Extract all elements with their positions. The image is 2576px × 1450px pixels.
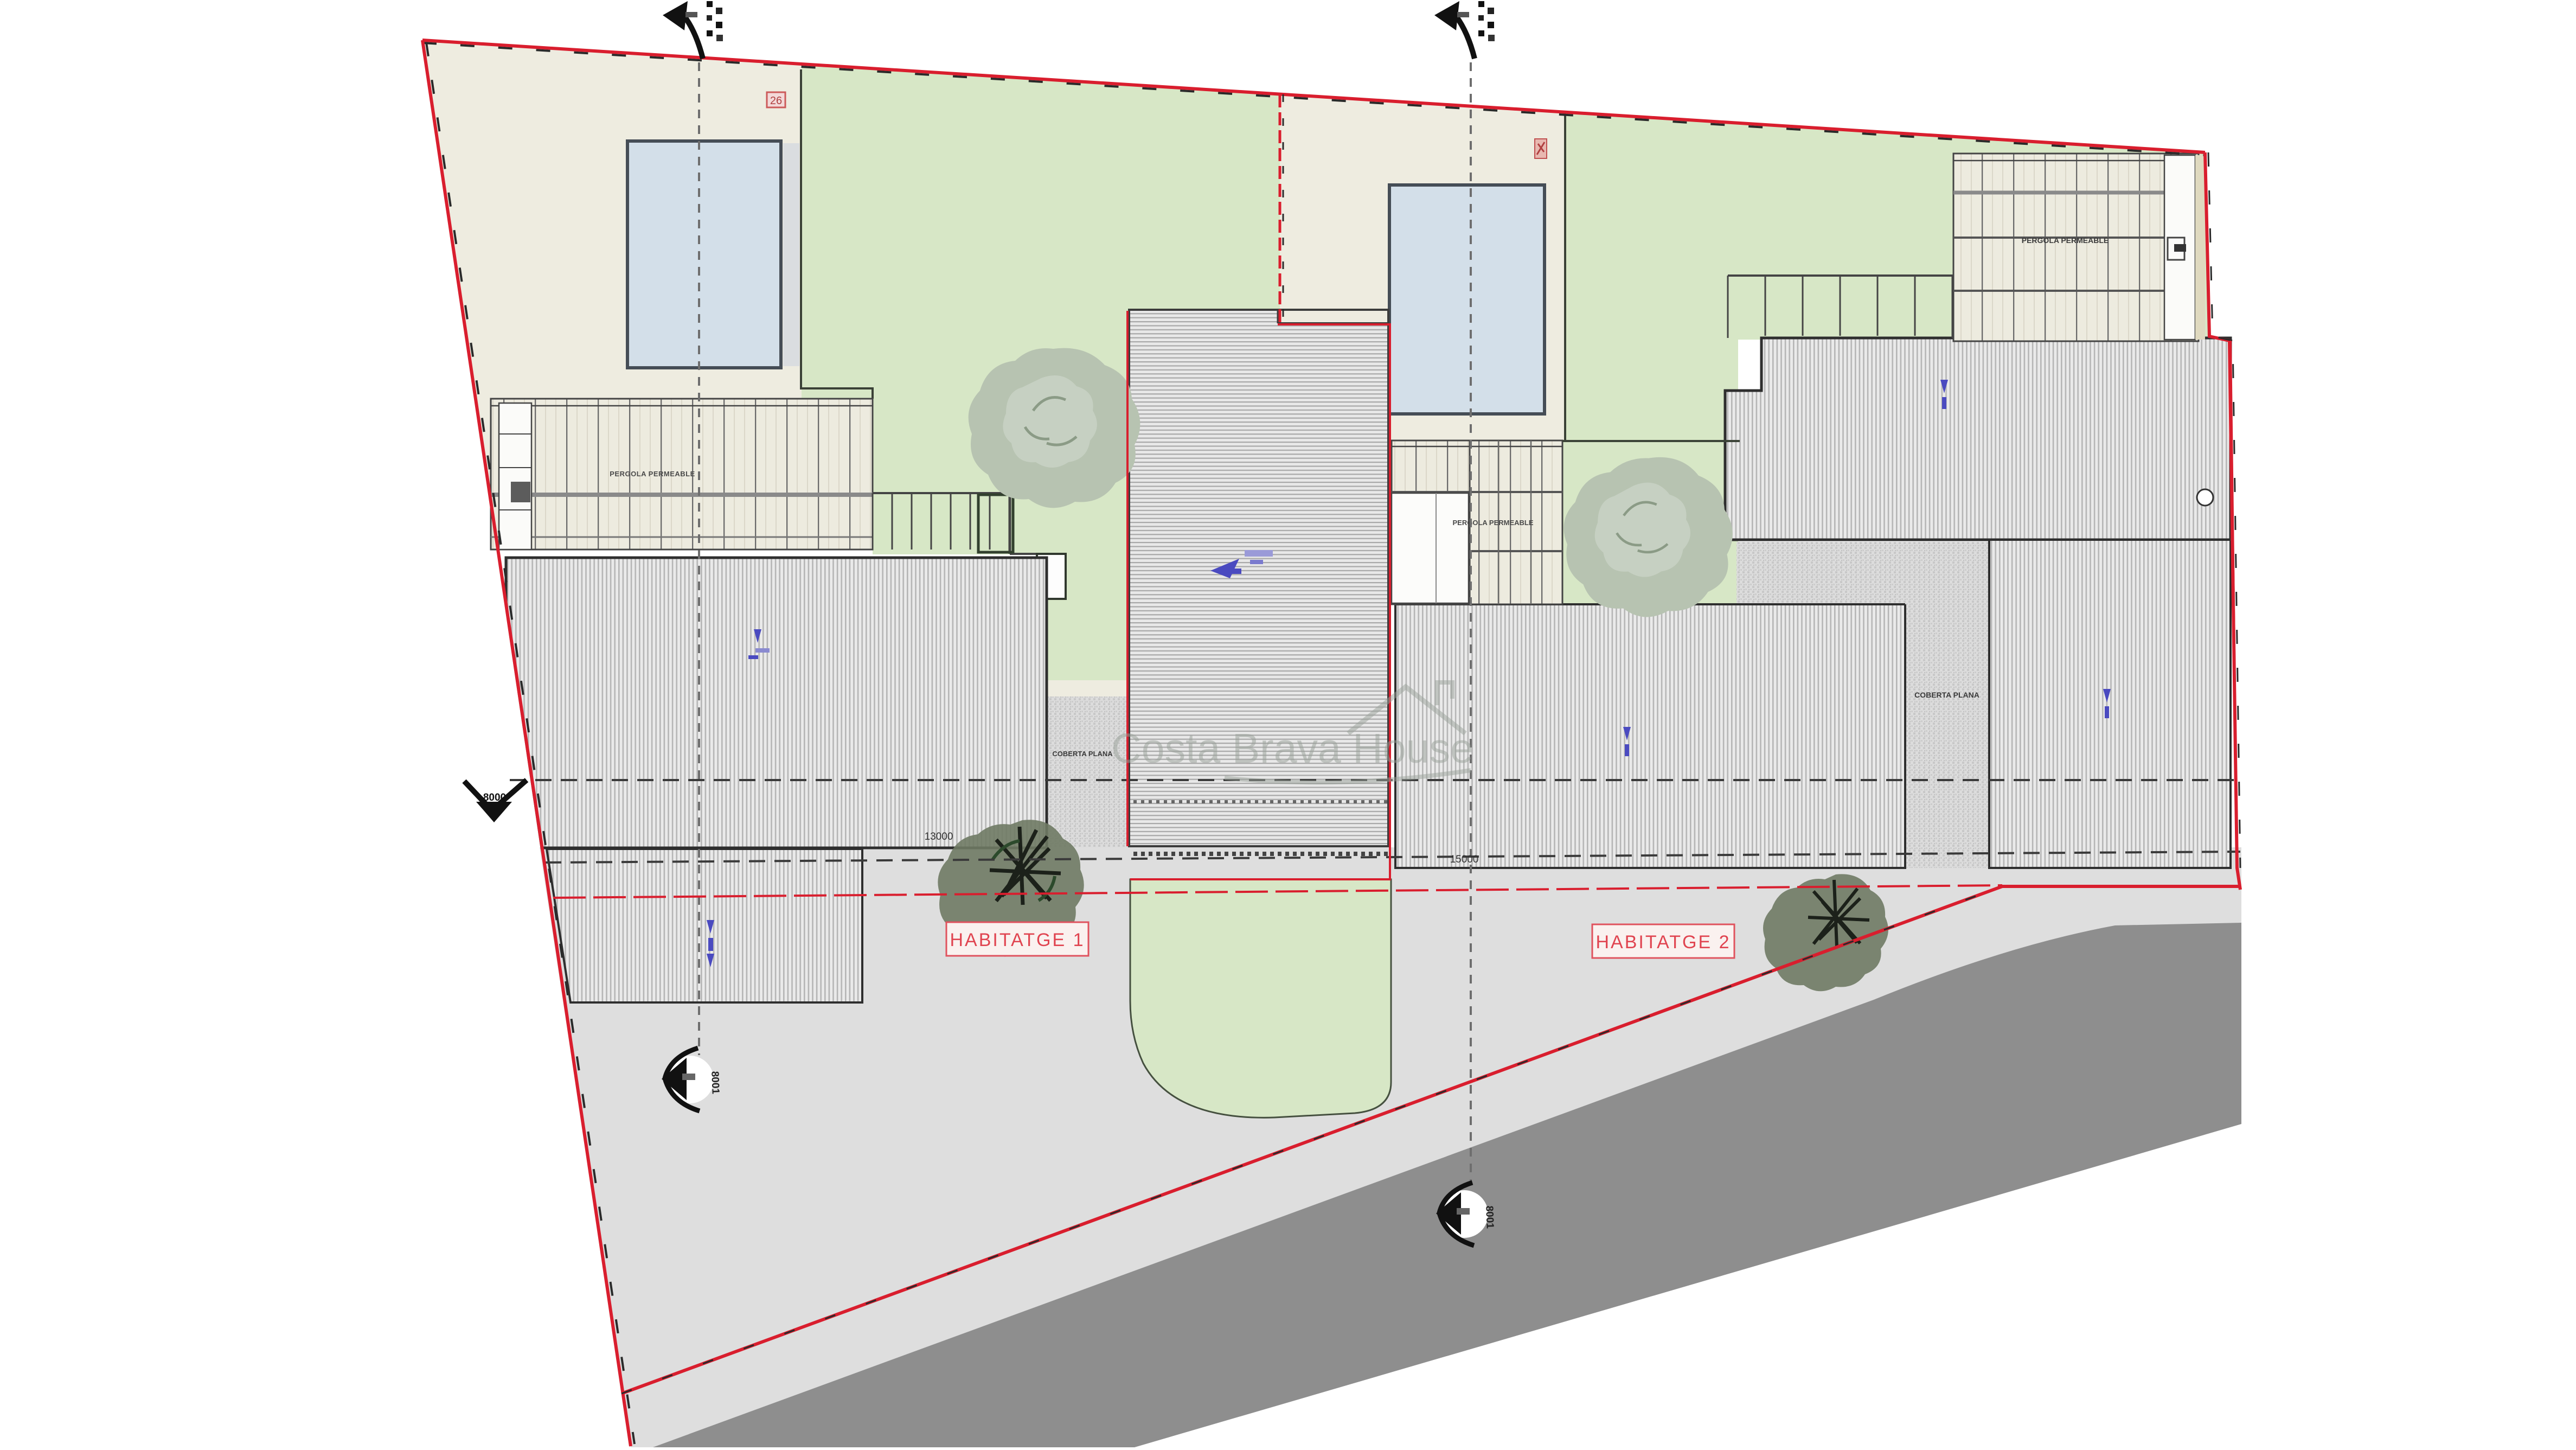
svg-text:26: 26 xyxy=(770,95,782,107)
svg-text:8001: 8001 xyxy=(709,1071,721,1094)
svg-text:13000: 13000 xyxy=(925,831,953,842)
svg-text:COBERTA PLANA: COBERTA PLANA xyxy=(1914,691,1979,699)
svg-text:HABITATGE 2: HABITATGE 2 xyxy=(1595,932,1731,953)
svg-text:COBERTA PLANA: COBERTA PLANA xyxy=(1052,750,1113,758)
svg-text:HABITATGE 1: HABITATGE 1 xyxy=(950,930,1085,950)
svg-text:8001: 8001 xyxy=(1483,1205,1495,1229)
svg-text:PERGOLA PERMEABLE: PERGOLA PERMEABLE xyxy=(610,470,695,478)
svg-text:Costa Brava House: Costa Brava House xyxy=(1111,725,1473,772)
svg-text:8000: 8000 xyxy=(483,792,506,803)
svg-text:PERGOLA PERMEABLE: PERGOLA PERMEABLE xyxy=(1452,519,1533,527)
svg-text:PERGOLA PERMEABLE: PERGOLA PERMEABLE xyxy=(2022,236,2109,245)
svg-text:15000: 15000 xyxy=(1450,854,1479,865)
